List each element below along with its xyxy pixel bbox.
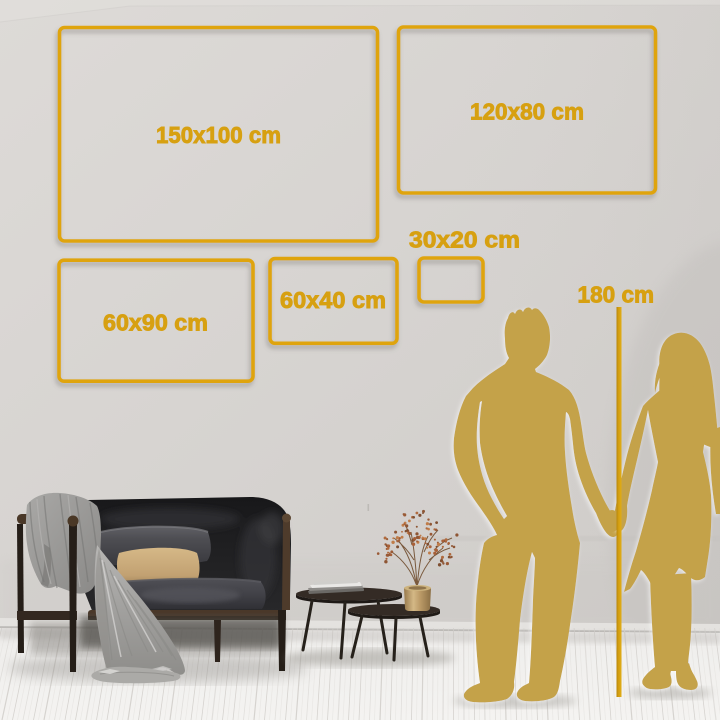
svg-text:60x90 cm: 60x90 cm	[103, 310, 208, 336]
svg-text:120x80 cm: 120x80 cm	[470, 99, 584, 125]
svg-text:60x40 cm: 60x40 cm	[280, 287, 386, 313]
svg-text:150x100 cm: 150x100 cm	[156, 122, 281, 148]
svg-text:180 cm: 180 cm	[578, 282, 655, 308]
svg-text:30x20 cm: 30x20 cm	[409, 227, 520, 253]
